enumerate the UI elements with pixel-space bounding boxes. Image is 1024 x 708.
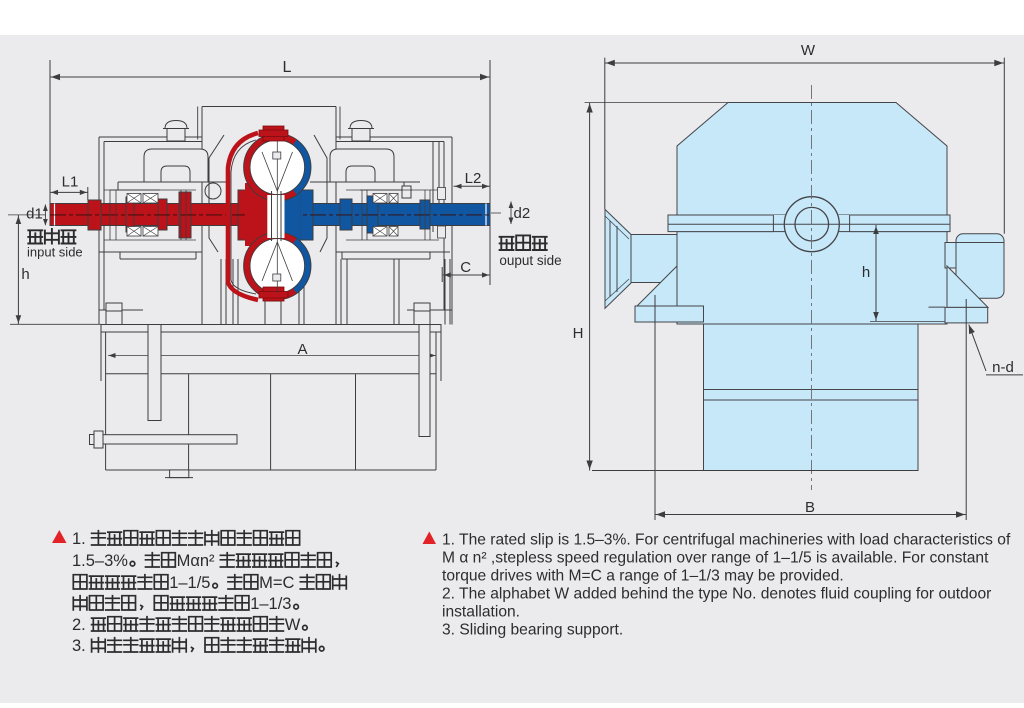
svg-text:3. Sliding bearing support.: 3. Sliding bearing support. <box>442 622 623 639</box>
svg-text:ouput side: ouput side <box>499 253 561 268</box>
svg-text:h: h <box>862 264 870 281</box>
svg-text:input side: input side <box>27 245 83 260</box>
svg-text:W: W <box>801 42 816 59</box>
svg-text:L2: L2 <box>465 170 482 187</box>
svg-text:M=C: M=C <box>259 574 294 592</box>
svg-text:1.5–3%: 1.5–3% <box>72 552 128 570</box>
svg-text:2.: 2. <box>72 616 86 634</box>
svg-text:L1: L1 <box>62 174 79 191</box>
svg-text:n-d: n-d <box>992 359 1014 376</box>
svg-text:d2: d2 <box>514 205 531 222</box>
svg-text:Mαn²: Mαn² <box>177 552 215 570</box>
svg-text:L: L <box>283 59 292 76</box>
svg-text:d1: d1 <box>26 206 43 223</box>
svg-text:h: h <box>21 266 29 283</box>
svg-text:M α n² ,stepless speed regulat: M α n² ,stepless speed regulation over r… <box>442 550 989 567</box>
svg-text:2. The alphabet W added behind: 2. The alphabet W added behind the type … <box>442 586 991 603</box>
svg-text:3.: 3. <box>72 637 86 655</box>
svg-text:H: H <box>573 325 584 342</box>
svg-text:A: A <box>297 341 307 358</box>
svg-text:W: W <box>285 616 301 634</box>
svg-text:1. The rated slip is 1.5–3%. F: 1. The rated slip is 1.5–3%. For centrif… <box>442 532 1011 549</box>
svg-text:torque drives with M=C a range: torque drives with M=C a range of 1–1/3 … <box>442 568 844 585</box>
svg-text:C: C <box>460 259 471 276</box>
svg-text:installation.: installation. <box>442 604 520 621</box>
svg-text:1–1/5: 1–1/5 <box>169 574 210 592</box>
svg-text:1.: 1. <box>72 530 86 548</box>
svg-text:B: B <box>805 499 815 516</box>
svg-text:1–1/3: 1–1/3 <box>250 595 291 613</box>
